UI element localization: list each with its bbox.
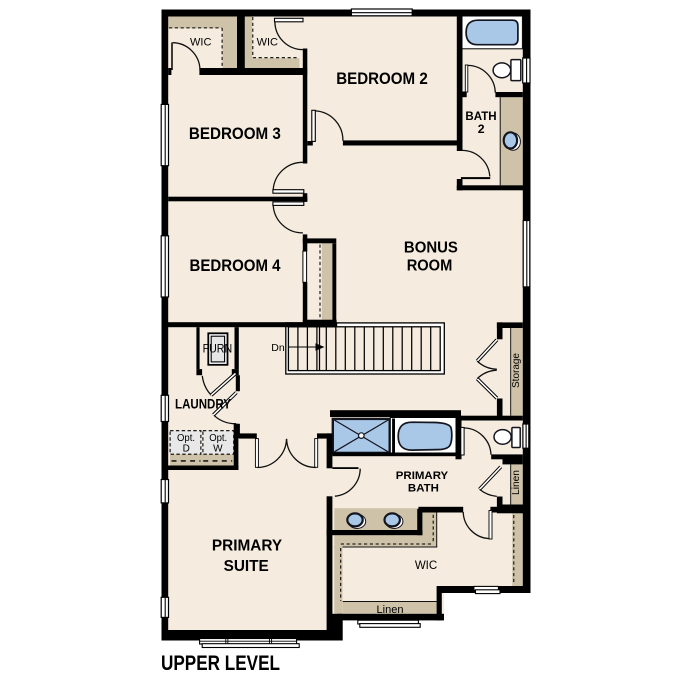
svg-text:BEDROOM 2: BEDROOM 2 bbox=[336, 69, 428, 88]
svg-text:D: D bbox=[183, 444, 190, 455]
svg-text:W: W bbox=[213, 444, 223, 455]
svg-text:2: 2 bbox=[478, 122, 485, 136]
svg-text:FURN: FURN bbox=[203, 341, 233, 355]
svg-text:LAUNDRY: LAUNDRY bbox=[175, 397, 231, 412]
svg-text:BATH: BATH bbox=[408, 483, 439, 495]
svg-text:BEDROOM 3: BEDROOM 3 bbox=[189, 124, 281, 143]
svg-text:Opt.: Opt. bbox=[177, 433, 195, 444]
svg-text:Dn: Dn bbox=[271, 342, 285, 354]
svg-text:Storage: Storage bbox=[511, 353, 522, 388]
svg-text:BONUS: BONUS bbox=[404, 240, 458, 257]
svg-text:ROOM: ROOM bbox=[407, 258, 453, 275]
svg-text:PRIMARY: PRIMARY bbox=[396, 470, 449, 482]
svg-text:WIC: WIC bbox=[190, 37, 211, 49]
svg-text:Opt.: Opt. bbox=[209, 433, 227, 444]
svg-text:Linen: Linen bbox=[511, 470, 522, 495]
svg-text:SUITE: SUITE bbox=[224, 558, 270, 575]
svg-text:BATH: BATH bbox=[465, 109, 496, 123]
svg-text:PRIMARY: PRIMARY bbox=[212, 538, 283, 555]
svg-text:WIC: WIC bbox=[257, 37, 278, 49]
svg-text:Linen: Linen bbox=[377, 604, 404, 616]
svg-text:BEDROOM 4: BEDROOM 4 bbox=[190, 256, 281, 275]
svg-text:WIC: WIC bbox=[415, 560, 437, 572]
svg-text:UPPER LEVEL: UPPER LEVEL bbox=[161, 652, 280, 675]
